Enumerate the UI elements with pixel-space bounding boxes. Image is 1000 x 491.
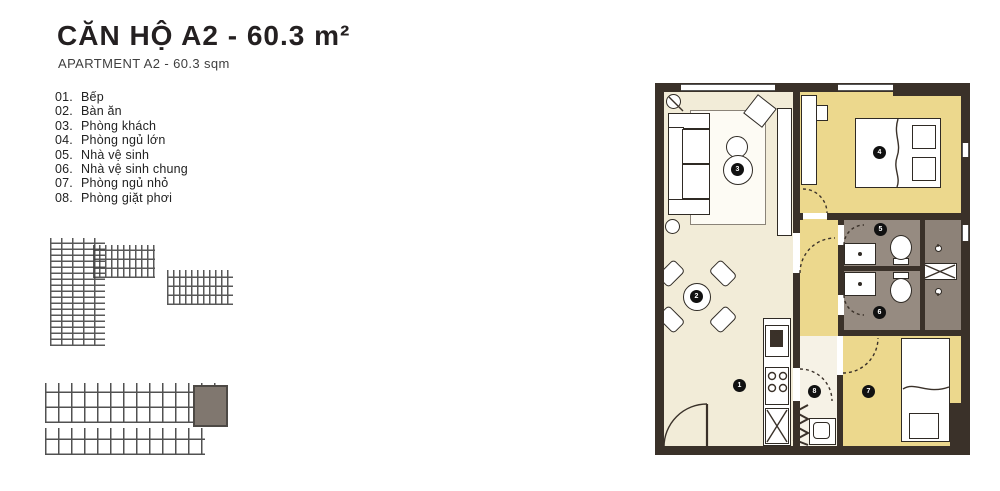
floor-plate-strip-top [93, 245, 155, 278]
marker-bathroom: 5 [874, 223, 887, 236]
page-title: CĂN HỘ A2 - 60.3 m² [57, 20, 350, 52]
wall-bath-west [838, 213, 844, 225]
shower-head-icon [935, 245, 942, 252]
sofa-cushion [682, 164, 710, 199]
wardrobe-knob [816, 105, 828, 121]
pillow [912, 157, 936, 181]
wall-between-baths [844, 266, 920, 271]
marker-living: 3 [731, 163, 744, 176]
shower-head-icon [935, 288, 942, 295]
marker-small-bedroom: 7 [862, 385, 875, 398]
pillow [912, 125, 936, 149]
fridge-xbox-icon [765, 408, 789, 444]
wall-bath-west [838, 315, 844, 330]
wall-corner-topright [893, 83, 970, 96]
wall-living-bedroom [793, 92, 800, 219]
sofa-cushion [682, 129, 710, 164]
key-plan-unit-highlight [193, 385, 228, 427]
brochure-page: CĂN HỘ A2 - 60.3 m² APARTMENT A2 - 60.3 … [0, 0, 1000, 491]
pillow [909, 413, 939, 439]
legend-item-small-bedroom: 07.Phòng ngủ nhỏ [55, 176, 188, 190]
wall-right [961, 83, 970, 455]
stove [765, 367, 789, 405]
key-plan-row-bottom [45, 428, 205, 455]
window [962, 143, 969, 157]
apartment-floor-plan: 1 2 3 4 5 6 7 8 [655, 83, 970, 455]
legend-item-bathroom: 05.Nhà vệ sinh [55, 148, 188, 162]
window [681, 84, 775, 91]
toilet [890, 278, 912, 303]
marker-kitchen: 1 [733, 379, 746, 392]
marker-laundry: 8 [808, 385, 821, 398]
room-legend: 01.Bếp 02.Bàn ăn 03.Phòng khách 04.Phòng… [55, 90, 188, 205]
wall-bedroom-south [827, 213, 961, 220]
hallway-floor [800, 219, 838, 336]
kitchen-sink [765, 325, 789, 357]
washer-drum [813, 422, 830, 439]
wall-corner-bottomright [950, 403, 970, 455]
tv-console [777, 108, 792, 236]
vanity-sink [844, 272, 876, 296]
washing-machine [809, 418, 836, 445]
key-plan [45, 383, 226, 455]
wardrobe [801, 95, 817, 185]
sink-basin [770, 330, 783, 347]
wall-bath-south [838, 330, 961, 336]
legend-item-living: 03.Phòng khách [55, 119, 188, 133]
legend-item-laundry: 08.Phòng giặt phơi [55, 191, 188, 205]
legend-item-dining: 02.Bàn ăn [55, 104, 188, 118]
sink-drain [858, 282, 862, 286]
marker-dining: 2 [690, 290, 703, 303]
legend-item-shared-bathroom: 06.Nhà vệ sinh chung [55, 162, 188, 176]
floor-plate-strip-right [167, 270, 233, 305]
marker-master-bedroom: 4 [873, 146, 886, 159]
marker-shared-bathroom: 6 [873, 306, 886, 319]
laundry-xbox-icon [923, 263, 957, 280]
vanity-sink [844, 243, 876, 265]
wall-left [655, 83, 664, 455]
legend-item-kitchen: 01.Bếp [55, 90, 188, 104]
wall-corridor-bedroom [837, 375, 843, 446]
page-subtitle: APARTMENT A2 - 60.3 sqm [58, 56, 230, 71]
window [838, 84, 893, 91]
sofa-armrest-bottom [668, 199, 710, 215]
wall-bath-laundry [920, 219, 925, 330]
floor-lamp-icon [665, 219, 680, 234]
floor-lamp-icon [666, 94, 681, 109]
wall-hallway-west [793, 273, 800, 368]
wall-bottom [655, 446, 970, 455]
wall-hallway-west [793, 219, 800, 233]
window [962, 225, 969, 241]
wall-hallway-west [793, 401, 800, 446]
sink-drain [858, 252, 862, 256]
toilet [890, 235, 912, 260]
legend-item-master-bedroom: 04.Phòng ngủ lớn [55, 133, 188, 147]
